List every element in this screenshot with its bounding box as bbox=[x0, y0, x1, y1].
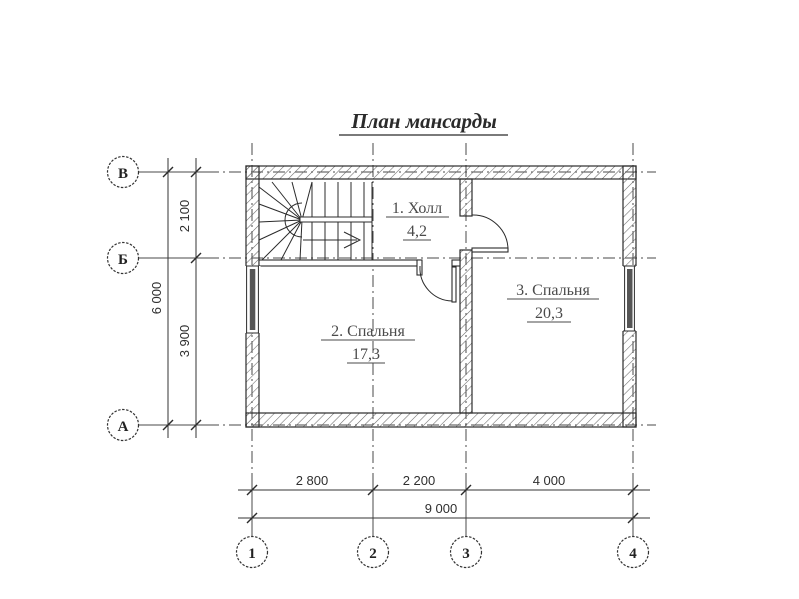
axis-label-b: Б bbox=[118, 252, 128, 268]
floor-plan-page: 2 100 3 900 6 000 2 800 2 200 4 000 9 00… bbox=[0, 0, 799, 599]
room-label-bedroom3: 3. Спальня bbox=[516, 282, 590, 299]
window-glazing bbox=[627, 269, 633, 328]
exterior-wall-top bbox=[246, 166, 636, 179]
dim-label-4000: 4 000 bbox=[533, 473, 566, 488]
dim-label-3900: 3 900 bbox=[177, 325, 192, 358]
dimension-ticks bbox=[163, 167, 638, 523]
partition-wall bbox=[259, 260, 460, 275]
stair-treads-upper bbox=[312, 182, 364, 217]
window-right bbox=[622, 266, 638, 331]
floor-plan-drawing: 2 100 3 900 6 000 2 800 2 200 4 000 9 00… bbox=[0, 0, 799, 599]
room-bedroom3: 3. Спальня 20,3 bbox=[507, 282, 599, 322]
axis-label-a: А bbox=[118, 419, 129, 435]
dim-label-2800: 2 800 bbox=[296, 473, 329, 488]
door-leaf bbox=[472, 248, 508, 252]
room-hall: 1. Холл 4,2 bbox=[386, 200, 449, 240]
partition-wall-hall bbox=[259, 260, 420, 266]
room-label-hall: 1. Холл bbox=[392, 200, 442, 217]
door-hall-to-bedroom2 bbox=[420, 266, 456, 302]
axis-label-2: 2 bbox=[369, 546, 377, 562]
room-area-bedroom2: 17,3 bbox=[352, 346, 380, 363]
window-left bbox=[245, 266, 261, 333]
axis-label-1: 1 bbox=[248, 546, 256, 562]
door-swing-arc bbox=[472, 215, 508, 250]
partition-wall-stub bbox=[452, 260, 460, 266]
interior-wall-upper bbox=[460, 179, 472, 216]
dim-label-2200: 2 200 bbox=[403, 473, 436, 488]
dim-label-2100: 2 100 bbox=[177, 200, 192, 233]
axis-label-3: 3 bbox=[462, 546, 470, 562]
interior-wall-lower bbox=[460, 250, 472, 413]
door-leaf bbox=[452, 267, 456, 302]
staircase bbox=[259, 182, 372, 260]
dim-label-6000: 6 000 bbox=[149, 282, 164, 315]
stair-handrail bbox=[300, 217, 372, 222]
dim-label-9000: 9 000 bbox=[425, 501, 458, 516]
door-swing-arc bbox=[420, 266, 452, 301]
axis-label-v: В bbox=[118, 166, 128, 182]
door-hall-to-bedroom3 bbox=[472, 215, 508, 252]
page-title: План мансарды bbox=[350, 109, 497, 133]
stair-treads-lower bbox=[312, 222, 364, 260]
room-area-hall: 4,2 bbox=[407, 223, 427, 240]
window-glazing bbox=[250, 269, 256, 330]
room-area-bedroom3: 20,3 bbox=[535, 305, 563, 322]
exterior-wall-bottom bbox=[246, 413, 636, 427]
axis-label-4: 4 bbox=[629, 546, 637, 562]
room-label-bedroom2: 2. Спальня bbox=[331, 323, 405, 340]
room-bedroom2: 2. Спальня 17,3 bbox=[321, 323, 415, 363]
